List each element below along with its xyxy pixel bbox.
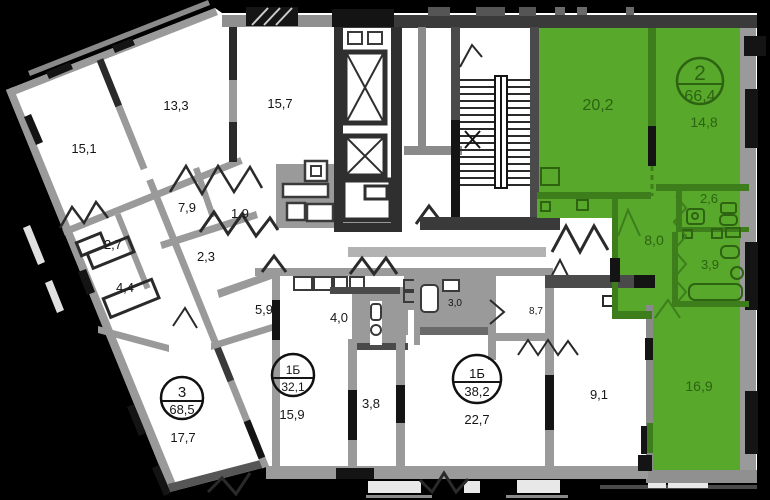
svg-text:38,2: 38,2	[464, 384, 489, 399]
svg-text:8,7: 8,7	[529, 306, 543, 317]
svg-text:16,9: 16,9	[685, 378, 712, 394]
svg-text:2,6: 2,6	[700, 191, 718, 206]
svg-text:3,9: 3,9	[701, 257, 719, 272]
svg-text:4,0: 4,0	[330, 310, 348, 325]
svg-text:2,7: 2,7	[104, 237, 122, 252]
svg-text:22,7: 22,7	[464, 412, 489, 427]
svg-text:4,4: 4,4	[116, 280, 134, 295]
svg-text:3: 3	[178, 384, 186, 401]
svg-text:15,7: 15,7	[267, 96, 292, 111]
svg-text:66,4: 66,4	[684, 88, 715, 105]
svg-text:2: 2	[694, 62, 706, 85]
svg-text:8,0: 8,0	[644, 232, 664, 248]
svg-text:1,9: 1,9	[231, 206, 249, 221]
svg-text:14,8: 14,8	[690, 114, 717, 130]
svg-text:1Б: 1Б	[286, 363, 301, 377]
svg-text:1Б: 1Б	[469, 366, 485, 381]
svg-text:17,7: 17,7	[170, 430, 195, 445]
svg-text:3,8: 3,8	[362, 396, 380, 411]
svg-text:32,1: 32,1	[281, 380, 305, 394]
svg-text:68,5: 68,5	[169, 402, 194, 417]
svg-text:13,3: 13,3	[163, 98, 188, 113]
svg-text:3,0: 3,0	[448, 298, 462, 309]
svg-text:9,1: 9,1	[590, 387, 608, 402]
svg-text:5,9: 5,9	[255, 302, 273, 317]
svg-text:7,9: 7,9	[178, 200, 196, 215]
svg-text:15,9: 15,9	[279, 407, 304, 422]
svg-text:20,2: 20,2	[582, 97, 613, 114]
svg-text:2,3: 2,3	[197, 249, 215, 264]
svg-text:15,1: 15,1	[71, 141, 96, 156]
